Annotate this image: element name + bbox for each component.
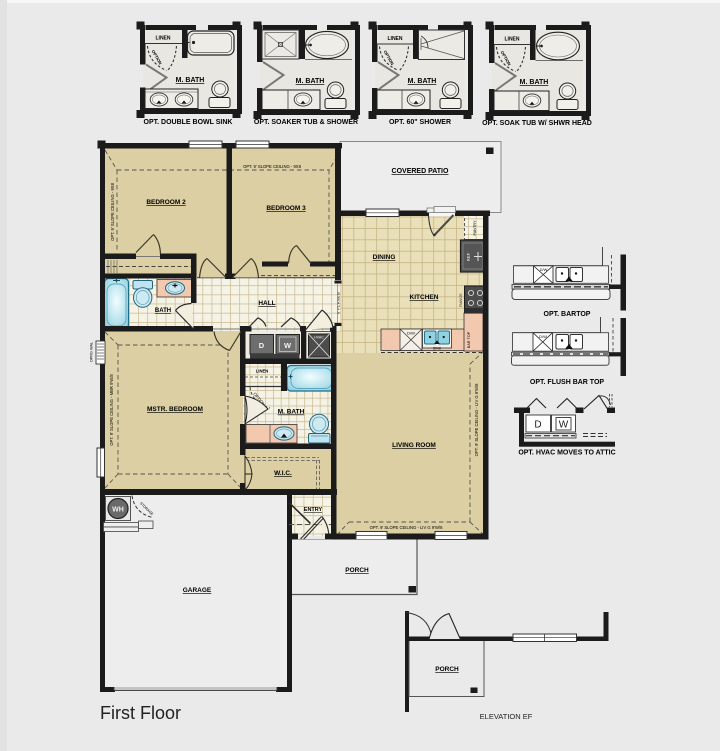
svg-text:W: W bbox=[559, 420, 569, 431]
svg-text:D: D bbox=[259, 341, 265, 350]
svg-text:DINING: DINING bbox=[373, 254, 396, 261]
svg-text:6' PL KNE B: 6' PL KNE B bbox=[336, 292, 341, 314]
svg-text:LINEN: LINEN bbox=[505, 37, 520, 43]
svg-text:OPT. BARTOP: OPT. BARTOP bbox=[544, 311, 591, 318]
svg-text:LIVING ROOM: LIVING ROOM bbox=[392, 442, 436, 449]
svg-text:SINK: SINK bbox=[433, 347, 442, 351]
svg-text:GARAGE: GARAGE bbox=[183, 587, 212, 594]
svg-text:LINEN: LINEN bbox=[388, 36, 403, 42]
svg-text:D/W: D/W bbox=[407, 331, 415, 336]
svg-text:BATH: BATH bbox=[155, 308, 171, 314]
svg-text:M. BATH: M. BATH bbox=[296, 78, 325, 85]
svg-text:First Floor: First Floor bbox=[100, 703, 181, 723]
svg-text:OPT. 60" SHOWER: OPT. 60" SHOWER bbox=[389, 119, 451, 126]
svg-text:REF: REF bbox=[466, 252, 471, 261]
svg-text:W: W bbox=[284, 341, 292, 350]
svg-text:BEDROOM 2: BEDROOM 2 bbox=[146, 199, 186, 206]
svg-text:D/W: D/W bbox=[539, 334, 547, 339]
svg-text:BEDROOM 3: BEDROOM 3 bbox=[266, 205, 306, 212]
svg-text:WH: WH bbox=[112, 507, 124, 514]
svg-text:OPT. SOAKER TUB & SHOWER: OPT. SOAKER TUB & SHOWER bbox=[254, 119, 358, 126]
svg-text:HALL: HALL bbox=[258, 300, 275, 307]
svg-text:KITCHEN: KITCHEN bbox=[410, 294, 439, 301]
svg-text:D/W: D/W bbox=[540, 267, 548, 272]
svg-text:OPT. 9' SLOPE CEILING - MBR 9': OPT. 9' SLOPE CEILING - MBR 9'W/8 bbox=[109, 374, 114, 446]
svg-text:OPT. DOUBLE BOWL SINK: OPT. DOUBLE BOWL SINK bbox=[144, 119, 233, 126]
svg-text:OPT. 9' SLOPE CEILING - LIV G: OPT. 9' SLOPE CEILING - LIV G 9'W/8 bbox=[474, 383, 479, 456]
svg-text:OPRG WAL: OPRG WAL bbox=[90, 342, 94, 362]
svg-text:OPT. SOAK TUB W/ SHWR HEAD: OPT. SOAK TUB W/ SHWR HEAD bbox=[482, 120, 592, 127]
svg-text:RANGE: RANGE bbox=[459, 293, 463, 307]
svg-text:M. BATH: M. BATH bbox=[408, 78, 437, 85]
svg-text:OPT. HVAC MOVES TO ATTIC: OPT. HVAC MOVES TO ATTIC bbox=[518, 450, 615, 457]
svg-text:M. BATH: M. BATH bbox=[278, 409, 305, 416]
svg-text:PORCH: PORCH bbox=[345, 567, 369, 574]
svg-text:HVAC: HVAC bbox=[314, 336, 324, 340]
svg-text:ENTRY: ENTRY bbox=[304, 507, 323, 513]
svg-text:BAR TOP: BAR TOP bbox=[467, 331, 471, 348]
svg-text:M. BATH: M. BATH bbox=[176, 77, 205, 84]
svg-text:LINEN: LINEN bbox=[156, 36, 171, 42]
svg-text:LINEN: LINEN bbox=[256, 369, 269, 374]
svg-text:D: D bbox=[534, 420, 541, 431]
svg-text:MSTR. BEDROOM: MSTR. BEDROOM bbox=[147, 406, 203, 413]
svg-text:OPT. 9' SLOPE CEILING - 9X8: OPT. 9' SLOPE CEILING - 9X8 bbox=[110, 182, 115, 240]
svg-text:OPT. 9' SLOPE CEILING - 9X8: OPT. 9' SLOPE CEILING - 9X8 bbox=[243, 164, 301, 169]
svg-text:W.I.C.: W.I.C. bbox=[274, 470, 292, 477]
svg-text:PORCH: PORCH bbox=[435, 666, 459, 673]
svg-text:M. BATH: M. BATH bbox=[520, 79, 549, 86]
svg-text:COVERED PATIO: COVERED PATIO bbox=[392, 168, 449, 175]
svg-text:PANTRY: PANTRY bbox=[473, 220, 477, 236]
svg-text:OPT. 9' SLOPE CEILING - LIV G: OPT. 9' SLOPE CEILING - LIV G 9'W/8 bbox=[370, 525, 443, 530]
svg-text:OPT. FLUSH BAR TOP: OPT. FLUSH BAR TOP bbox=[530, 379, 604, 386]
svg-text:ELEVATION EF: ELEVATION EF bbox=[480, 712, 533, 721]
